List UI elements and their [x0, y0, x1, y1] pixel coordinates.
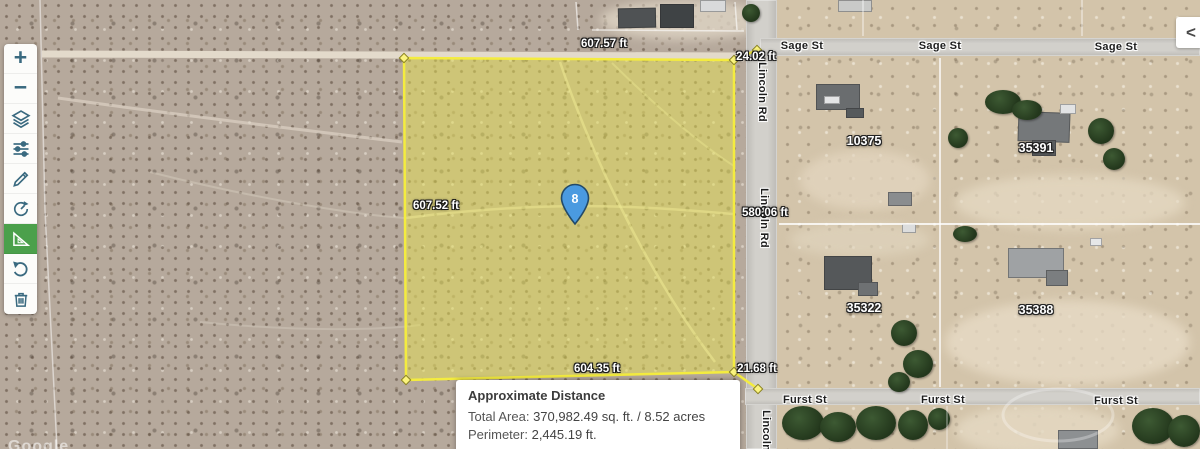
street-label-lincoln: Lincoln Rd — [756, 62, 768, 122]
perimeter-label: Perimeter: — [468, 427, 528, 442]
measurement-label-bottom-tie: 21.68 ft — [737, 363, 777, 375]
perimeter-value: 2,445.19 ft. — [532, 427, 597, 442]
sliders-button[interactable] — [4, 134, 37, 164]
parcel-line — [40, 0, 57, 449]
zoom-in-button[interactable]: + — [4, 44, 37, 74]
undo-button[interactable] — [4, 254, 37, 284]
delete-button[interactable] — [4, 284, 37, 314]
measurement-label-bottom: 604.35 ft — [574, 363, 620, 375]
trail — [58, 98, 402, 142]
collapse-panel-button[interactable]: < — [1176, 17, 1200, 48]
street-label-sage: Sage St — [781, 40, 823, 52]
trail — [150, 172, 404, 218]
minus-icon: − — [14, 76, 27, 99]
layers-button[interactable] — [4, 104, 37, 134]
measurement-label-right: 580.06 ft — [742, 207, 788, 219]
street-label-sage: Sage St — [1095, 41, 1137, 53]
measurement-info-panel: Approximate Distance Total Area: 370,982… — [456, 380, 740, 449]
total-area-label: Total Area: — [468, 409, 529, 424]
parcel-number: 35391 — [1019, 141, 1054, 155]
street-label-lincoln: Lincoln Rd — [760, 410, 772, 449]
measurement-label-top-tie: 24.02 ft — [736, 51, 776, 63]
rotate-icon — [11, 199, 31, 219]
set-square-icon — [11, 229, 31, 249]
street-label-furst: Furst St — [783, 394, 827, 406]
zoom-out-button[interactable]: − — [4, 74, 37, 104]
pencil-icon — [11, 169, 31, 189]
sliders-icon — [11, 139, 31, 159]
street-label-furst: Furst St — [1094, 395, 1138, 407]
dirt-road — [42, 54, 745, 56]
parcel-number: 35322 — [847, 301, 882, 315]
google-logo: Google — [8, 438, 69, 449]
panel-title: Approximate Distance — [468, 388, 728, 403]
trash-icon — [11, 289, 31, 309]
parcel-number: 35388 — [1019, 303, 1054, 317]
undo-icon — [11, 259, 31, 279]
draw-button[interactable] — [4, 164, 37, 194]
parcel-line — [576, 2, 744, 31]
parcel-number: 10375 — [847, 134, 882, 148]
plus-icon: + — [14, 46, 27, 69]
measurement-label-top: 607.57 ft — [581, 38, 627, 50]
layers-icon — [11, 109, 31, 129]
measurement-label-left: 607.52 ft — [413, 200, 459, 212]
trail — [200, 322, 420, 329]
pin-label: 8 — [572, 192, 579, 206]
chevron-left-icon: < — [1186, 23, 1196, 43]
measure-area-button[interactable] — [4, 224, 37, 254]
map-marker-pin[interactable]: 8 — [560, 183, 590, 231]
map-toolbar: + − — [4, 44, 37, 314]
street-label-furst: Furst St — [921, 394, 965, 406]
map-canvas[interactable]: Sage St Sage St Sage St Furst St Furst S… — [0, 0, 1200, 449]
rotate-button[interactable] — [4, 194, 37, 224]
total-area-value: 370,982.49 sq. ft. / 8.52 acres — [533, 409, 705, 424]
street-label-sage: Sage St — [919, 40, 961, 52]
